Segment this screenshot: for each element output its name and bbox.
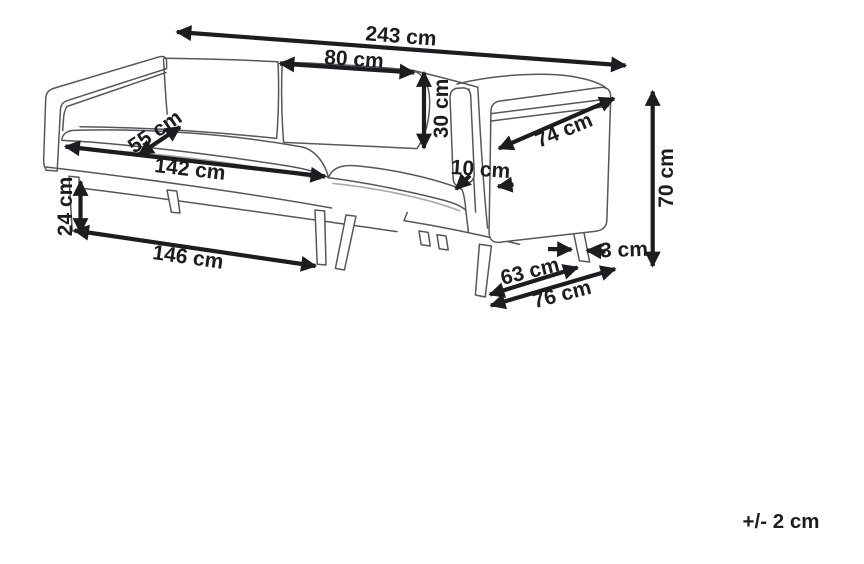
sofa-leg xyxy=(419,231,430,246)
sofa-seat-cushion-right xyxy=(329,165,466,210)
sofa-dimension-diagram: 243 cm 80 cm 30 cm 55 cm 142 cm 74 cm 10… xyxy=(0,0,864,564)
label-overall-height: 70 cm xyxy=(655,148,678,208)
label-back-cushion-height: 30 cm xyxy=(430,79,453,139)
label-leg-height: 24 cm xyxy=(54,177,77,237)
arrow-leg-thickness-a xyxy=(548,249,572,250)
tolerance-note: +/- 2 cm xyxy=(743,510,820,533)
label-armrest-thickness: 10 cm xyxy=(450,156,511,183)
label-base-side-depth: 76 cm xyxy=(530,276,593,313)
label-seat-width: 142 cm xyxy=(153,154,226,185)
arrow-armrest-thickness-b xyxy=(498,185,514,187)
sofa-leg xyxy=(437,235,448,250)
sofa-seat-shadow-right xyxy=(333,183,460,210)
label-leg-thickness: 3 cm xyxy=(600,238,649,263)
sofa-back-cushion-right xyxy=(282,62,430,149)
sofa-leg xyxy=(315,210,326,265)
sofa-leg xyxy=(167,190,180,213)
sofa-leg xyxy=(475,244,491,297)
dimension-labels: 243 cm 80 cm 30 cm 55 cm 142 cm 74 cm 10… xyxy=(54,22,819,533)
diagram-canvas: 243 cm 80 cm 30 cm 55 cm 142 cm 74 cm 10… xyxy=(0,0,864,564)
label-base-front-width: 146 cm xyxy=(151,241,225,274)
label-back-cushion-width: 80 cm xyxy=(324,46,385,73)
